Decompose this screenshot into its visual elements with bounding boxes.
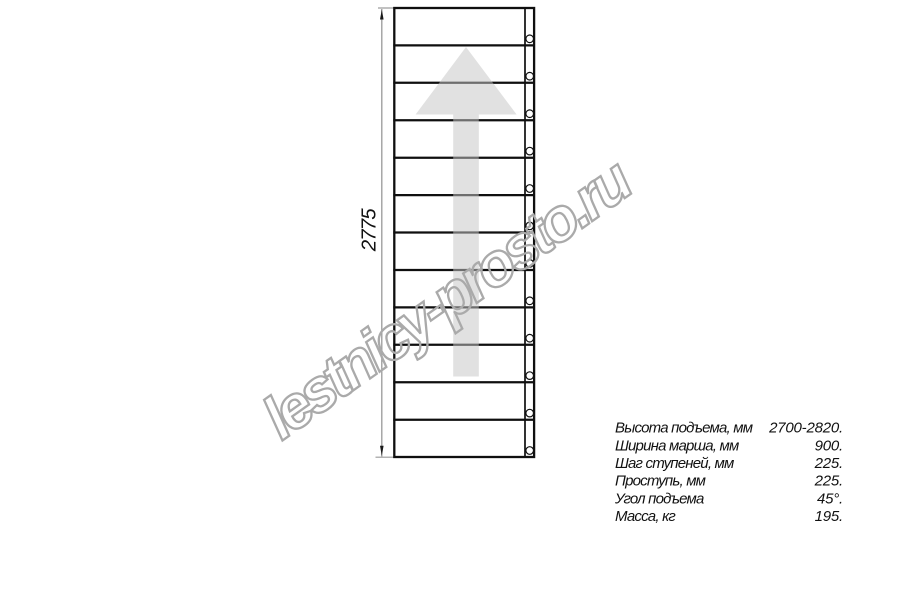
svg-text:900.: 900. xyxy=(815,437,843,454)
svg-text:Проступь, мм: Проступь, мм xyxy=(615,473,706,490)
svg-text:Высота подъема, мм: Высота подъема, мм xyxy=(615,420,753,437)
svg-text:195.: 195. xyxy=(815,508,843,525)
svg-text:Ширина марша, мм: Ширина марша, мм xyxy=(615,437,739,454)
svg-text:225.: 225. xyxy=(814,473,843,490)
svg-text:2700-2820.: 2700-2820. xyxy=(768,420,843,437)
svg-text:Угол подъема: Угол подъема xyxy=(614,490,704,507)
svg-text:225.: 225. xyxy=(814,455,843,472)
svg-text:45°.: 45°. xyxy=(817,490,843,507)
svg-text:Масса, кг: Масса, кг xyxy=(615,508,676,525)
svg-text:2775: 2775 xyxy=(358,208,381,253)
svg-text:Шаг ступеней, мм: Шаг ступеней, мм xyxy=(615,455,734,472)
